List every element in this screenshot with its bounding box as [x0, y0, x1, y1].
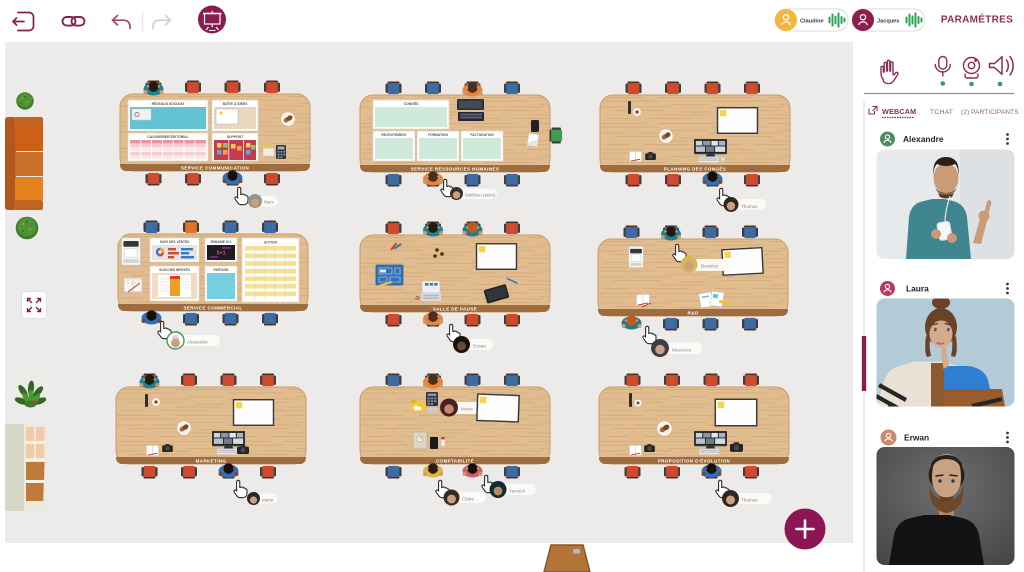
svg-text:PLANNING DES CONGÉS: PLANNING DES CONGÉS	[664, 165, 726, 172]
svg-text:Maxence: Maxence	[672, 348, 692, 354]
svg-text:SEMAINE S+1: SEMAINE S+1	[210, 240, 231, 244]
svg-text:Erwan: Erwan	[904, 433, 929, 443]
svg-text:SUPPORT: SUPPORT	[227, 135, 244, 139]
svg-text:Matthieu (anim): Matthieu (anim)	[465, 193, 496, 198]
svg-text:RÉSEAUX SOCIAUX: RÉSEAUX SOCIAUX	[152, 101, 186, 106]
svg-text:(2) PARTICIPANTS: (2) PARTICIPANTS	[961, 109, 1019, 116]
svg-text:CALENDRIER ÉDITORIAL: CALENDRIER ÉDITORIAL	[147, 134, 188, 139]
svg-text:COMPTABILITÉ: COMPTABILITÉ	[436, 457, 474, 464]
svg-text:SUIVI DES VENTES: SUIVI DES VENTES	[160, 240, 189, 244]
svg-text:PROPOSITION D'ÉVOLUTION: PROPOSITION D'ÉVOLUTION	[658, 457, 730, 464]
svg-text:FACTURATION: FACTURATION	[470, 133, 494, 137]
svg-text:SALLE DE PAUSE: SALLE DE PAUSE	[433, 307, 477, 312]
svg-text:Jacques: Jacques	[877, 18, 899, 24]
svg-text:WEBCAM: WEBCAM	[882, 107, 916, 116]
svg-text:SUIVI DES IMPAYÉS: SUIVI DES IMPAYÉS	[159, 267, 189, 272]
svg-text:ACTION: ACTION	[264, 241, 278, 245]
svg-text:Claudine: Claudine	[800, 18, 824, 24]
svg-text:S+1: S+1	[216, 251, 225, 257]
svg-text:CONGÉS: CONGÉS	[404, 101, 419, 106]
svg-text:Marie: Marie	[262, 498, 274, 503]
svg-text:Yannick: Yannick	[509, 489, 526, 494]
svg-text:Thomas: Thomas	[741, 204, 758, 209]
svg-text:SERVICE COMMUNICATION: SERVICE COMMUNICATION	[181, 166, 249, 171]
svg-text:Thomas: Thomas	[741, 498, 758, 503]
svg-text:TCHAT: TCHAT	[930, 109, 953, 116]
svg-text:MARKETING: MARKETING	[196, 459, 227, 464]
svg-text:Claire: Claire	[462, 497, 474, 502]
svg-text:Marie: Marie	[461, 407, 473, 413]
svg-text:FORMATION: FORMATION	[428, 133, 448, 137]
svg-text:Alexandre: Alexandre	[903, 134, 944, 144]
svg-text:R&D: R&D	[688, 311, 699, 316]
svg-text:Marc: Marc	[264, 200, 275, 205]
svg-text:SERVICE COMMERCIAL: SERVICE COMMERCIAL	[183, 306, 242, 311]
svg-text:PARAMÉTRES: PARAMÉTRES	[941, 13, 1013, 26]
svg-text:BOÎTE À IDÉES: BOÎTE À IDÉES	[223, 101, 249, 106]
svg-text:PARTAGE: PARTAGE	[213, 268, 228, 272]
svg-text:Alexandre: Alexandre	[187, 340, 208, 345]
svg-text:Erwan: Erwan	[473, 344, 486, 349]
svg-text:SERVICE RESSOURCES HUMAINES: SERVICE RESSOURCES HUMAINES	[411, 167, 499, 172]
svg-text:Beatrice: Beatrice	[701, 264, 719, 270]
svg-text:Laura: Laura	[906, 284, 929, 294]
svg-text:RECRUTEMENT: RECRUTEMENT	[381, 133, 406, 137]
